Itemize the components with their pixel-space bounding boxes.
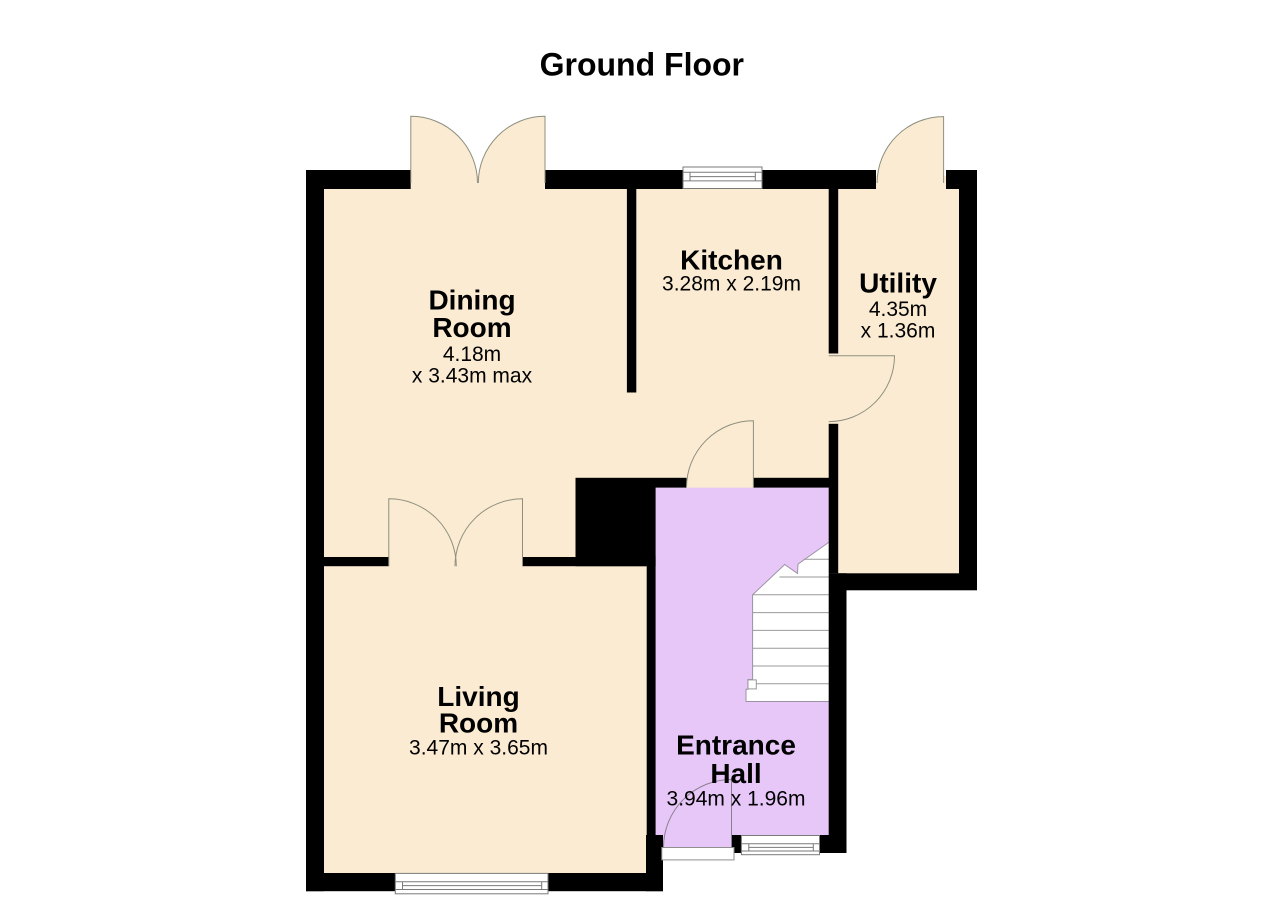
svg-text:x 3.43m max: x 3.43m max bbox=[412, 365, 533, 388]
svg-text:Entrance: Entrance bbox=[676, 730, 796, 761]
svg-text:4.18m: 4.18m bbox=[443, 343, 501, 366]
svg-text:Dining: Dining bbox=[428, 285, 515, 316]
svg-text:4.35m: 4.35m bbox=[869, 298, 927, 321]
svg-text:Utility: Utility bbox=[859, 268, 937, 299]
svg-text:Hall: Hall bbox=[710, 758, 761, 789]
svg-text:Kitchen: Kitchen bbox=[680, 244, 783, 275]
svg-text:Room: Room bbox=[432, 312, 511, 343]
svg-text:Room: Room bbox=[439, 708, 518, 739]
svg-text:3.28m x 2.19m: 3.28m x 2.19m bbox=[662, 273, 801, 296]
svg-text:Ground Floor: Ground Floor bbox=[540, 47, 744, 83]
svg-text:x 1.36m: x 1.36m bbox=[861, 320, 936, 343]
svg-text:3.47m x 3.65m: 3.47m x 3.65m bbox=[409, 736, 548, 759]
svg-text:3.94m x 1.96m: 3.94m x 1.96m bbox=[667, 787, 806, 810]
